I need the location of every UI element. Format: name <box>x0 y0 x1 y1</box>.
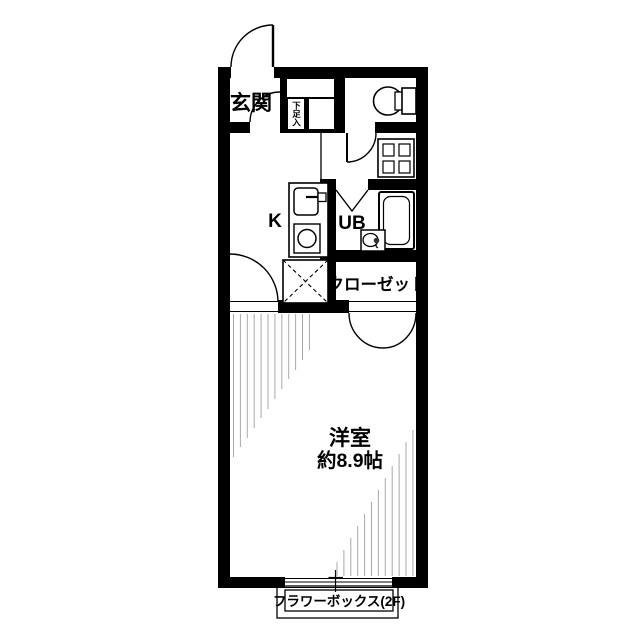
washing-machine-pan-q4 <box>399 161 410 173</box>
wall-top-left-stub <box>218 67 231 78</box>
closet-label: クローゼット <box>328 274 427 294</box>
stove-icon <box>294 224 320 253</box>
washing-machine-pan-q2 <box>399 144 410 156</box>
shoe-cabinet-right-compartment <box>309 99 334 129</box>
entrance-label: 玄関 <box>230 91 272 115</box>
unit-bath-label: UB <box>338 213 365 234</box>
wall-right <box>416 67 428 588</box>
toilet-tank <box>402 88 416 114</box>
sink-faucet-knob <box>318 193 326 202</box>
washbasin-faucet <box>374 238 380 244</box>
stove-burner <box>298 230 316 248</box>
washing-machine-pan-icon <box>378 139 414 177</box>
room-size-label: 約8.9帖 <box>317 449 384 472</box>
wall-left <box>218 67 230 588</box>
kitchen-counter <box>289 183 328 257</box>
wall-ub-top <box>368 179 416 190</box>
washing-machine-pan-q3 <box>383 161 394 173</box>
wall-closet-top <box>320 250 416 262</box>
floor-plan-page: フラワーボックス(2F) 玄関 下足入 K UB クローゼット 洋室 約8.9帖 <box>0 0 640 640</box>
floor-plan: フラワーボックス(2F) 玄関 下足入 K UB クローゼット 洋室 約8.9帖 <box>0 0 640 640</box>
shoe-cabinet-shelf <box>287 79 334 97</box>
refrigerator-space-icon <box>283 260 328 303</box>
wall-entrance-bottom <box>218 122 250 133</box>
washing-machine-pan-q1 <box>383 144 394 156</box>
bathtub-inner <box>384 197 410 245</box>
flower-box-label: フラワーボックス(2F) <box>273 594 405 609</box>
shoe-storage-label: 下足入 <box>292 101 302 127</box>
wall-toilet-bottom <box>375 122 416 133</box>
sink-basin <box>294 188 318 215</box>
room-label: 洋室 <box>329 426 371 450</box>
kitchen-label: K <box>268 211 282 232</box>
wall-bottom-left <box>218 577 285 588</box>
toilet-icon <box>374 87 417 115</box>
